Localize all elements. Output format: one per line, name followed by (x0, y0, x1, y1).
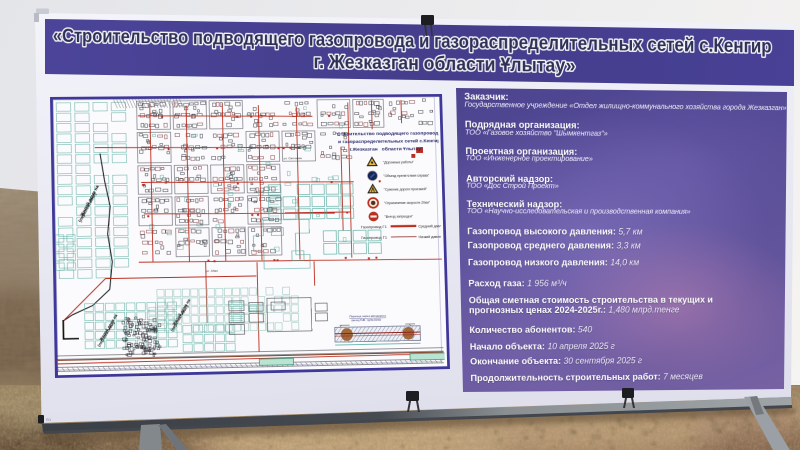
svg-text:по: по (46, 417, 51, 422)
